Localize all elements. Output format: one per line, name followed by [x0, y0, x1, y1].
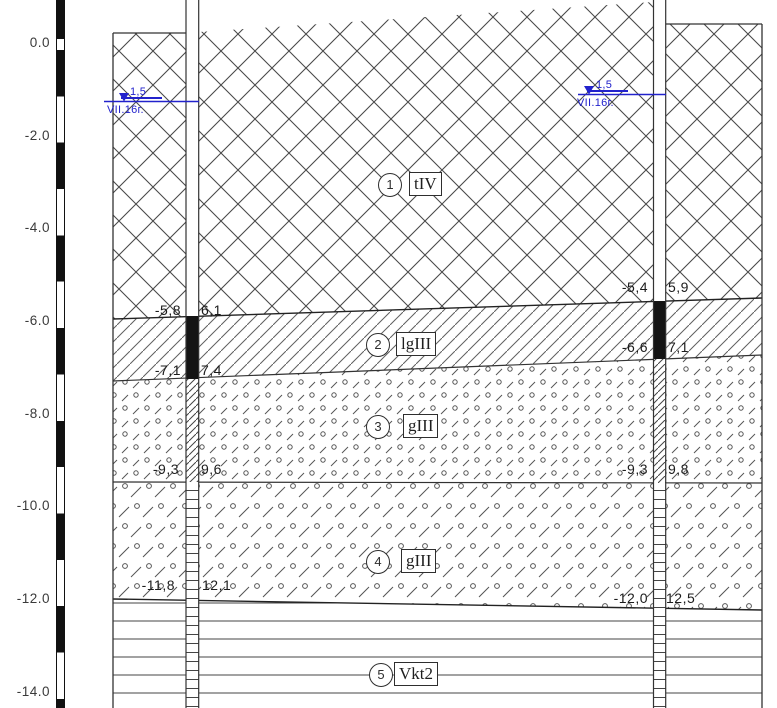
depth-scale-bar — [56, 0, 65, 708]
elevation-label: -9,3 — [117, 461, 179, 477]
elevation-label: -6,6 — [586, 339, 648, 355]
layer-3-index: gIII — [403, 414, 438, 438]
ruler-tick: -4.0 — [0, 220, 50, 236]
layer-3-number: 3 — [366, 415, 390, 439]
depth-label: 6,1 — [201, 302, 253, 318]
ruler-tick: -2.0 — [0, 128, 50, 144]
ruler-tick: -6.0 — [0, 313, 50, 329]
depth-label: 7,4 — [201, 362, 253, 378]
water-underline-right — [587, 90, 628, 92]
elevation-label: -7,1 — [119, 362, 181, 378]
ruler-tick: -10.0 — [0, 498, 50, 514]
elevation-label: -9,3 — [586, 461, 648, 477]
water-date-left: VII.16г. — [107, 104, 144, 116]
layer-5-number: 5 — [369, 663, 393, 687]
depth-label: 12,5 — [666, 590, 718, 606]
layer-2-index: lgIII — [396, 332, 436, 356]
layer-4-index: gIII — [401, 549, 436, 573]
depth-label: 7,1 — [668, 339, 720, 355]
layer-1-number: 1 — [378, 173, 402, 197]
left-pile — [186, 0, 200, 708]
layer-1-index: tIV — [409, 172, 442, 196]
geological-cross-section: 0.0 -2.0 -4.0 -6.0 -8.0 -10.0 -12.0 -14.… — [0, 0, 777, 708]
elevation-label: -5,4 — [586, 279, 648, 295]
depth-label: 5,9 — [668, 279, 720, 295]
ruler-tick: 0.0 — [0, 35, 50, 51]
elevation-label: -11,8 — [113, 577, 175, 593]
layer-4-number: 4 — [366, 550, 390, 574]
water-date-right: VII.16г. — [577, 97, 614, 109]
water-underline-left — [121, 97, 162, 99]
ruler-tick: -12.0 — [0, 591, 50, 607]
depth-label: 9,8 — [668, 461, 720, 477]
right-pile — [653, 0, 666, 708]
depth-label: 12,1 — [202, 577, 254, 593]
layer-5-index: Vkt2 — [394, 662, 438, 686]
ruler-tick: -14.0 — [0, 684, 50, 700]
elevation-label: -12,0 — [586, 590, 648, 606]
depth-label: 9,6 — [201, 461, 253, 477]
ruler-tick: -8.0 — [0, 406, 50, 422]
elevation-label: -5,8 — [119, 302, 181, 318]
layer-2-number: 2 — [366, 333, 390, 357]
